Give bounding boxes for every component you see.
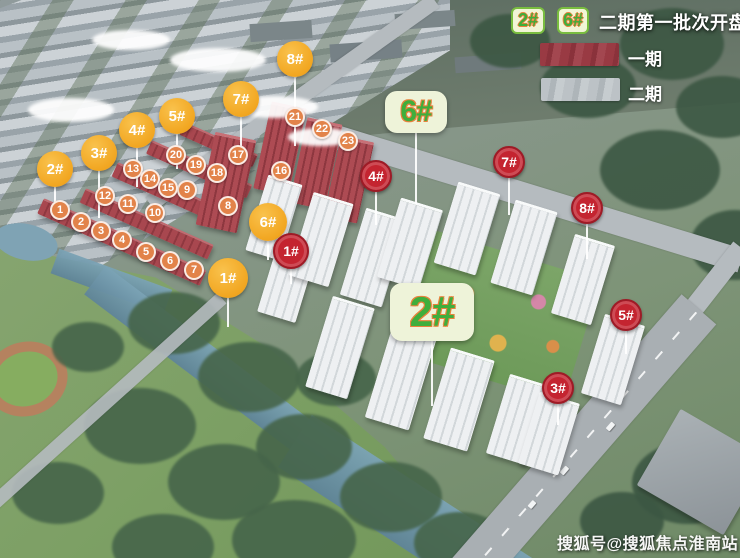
p1-unit-20: 20 [166,145,186,165]
tree [256,414,352,480]
opening-building-2: 2# [390,283,474,341]
p1-building-5: 5# [159,98,195,134]
p1-unit-21: 21 [285,107,305,127]
p1-unit-8: 8 [218,196,238,216]
p1-building-8: 8# [277,41,313,77]
p1-unit-14: 14 [140,169,160,189]
p1-unit-18: 18 [207,163,227,183]
marker-stick [375,189,377,225]
marker-stick [508,175,510,215]
legend-swatch-phase1 [540,43,619,66]
tree [198,342,300,412]
p1-unit-22: 22 [312,119,332,139]
marker-stick [415,130,417,204]
p1-unit-4: 4 [112,230,132,250]
header-title: 二期第一批次开盘 [599,9,740,35]
p1-building-1: 1# [208,258,248,298]
p1-unit-19: 19 [186,155,206,175]
marker-stick [431,338,433,406]
p1-unit-2: 2 [71,212,91,232]
p1-unit-15: 15 [158,178,178,198]
p1-unit-9: 9 [177,180,197,200]
p1-unit-5: 5 [136,242,156,262]
p1-building-4: 4# [119,112,155,148]
p1-unit-10: 10 [145,203,165,223]
watermark: 搜狐号@搜狐焦点淮南站 [557,530,738,554]
header-badge-6: 6# [557,7,589,34]
legend-label-phase1: 一期 [628,45,662,70]
p1-unit-1: 1 [50,200,70,220]
tree [600,130,720,210]
legend-label-phase2: 二期 [628,80,662,105]
p1-building-7: 7# [223,81,259,117]
marker-stick [557,401,559,425]
marker-stick [586,221,588,259]
cloud [28,98,114,122]
aerial-masterplan-image: 2#3#4#5#7#8#6#1#123456789101112131415161… [0,0,740,558]
p1-unit-12: 12 [95,186,115,206]
p2-building-1: 1# [273,233,309,269]
p1-unit-6: 6 [160,251,180,271]
marker-stick [267,238,269,260]
p1-building-2: 2# [37,151,73,187]
p2-building-7: 7# [493,146,525,178]
p1-unit-7: 7 [184,260,204,280]
cloud [92,30,170,50]
p1-unit-11: 11 [118,194,138,214]
marker-stick [625,328,627,354]
p1-unit-16: 16 [271,161,291,181]
phase2-building [551,234,615,326]
p2-building-8: 8# [571,192,603,224]
marker-stick [227,295,229,327]
p1-unit-17: 17 [228,145,248,165]
header-badge-2: 2# [511,7,545,34]
cloud [170,48,266,72]
p2-building-4: 4# [360,160,392,192]
p2-building-5: 5# [610,299,642,331]
opening-building-6: 6# [385,91,447,133]
legend-swatch-phase2 [541,78,620,101]
p1-unit-23: 23 [338,131,358,151]
p1-unit-3: 3 [91,221,111,241]
p1-building-3: 3# [81,135,117,171]
tree [52,322,124,372]
p2-building-3: 3# [542,372,574,404]
